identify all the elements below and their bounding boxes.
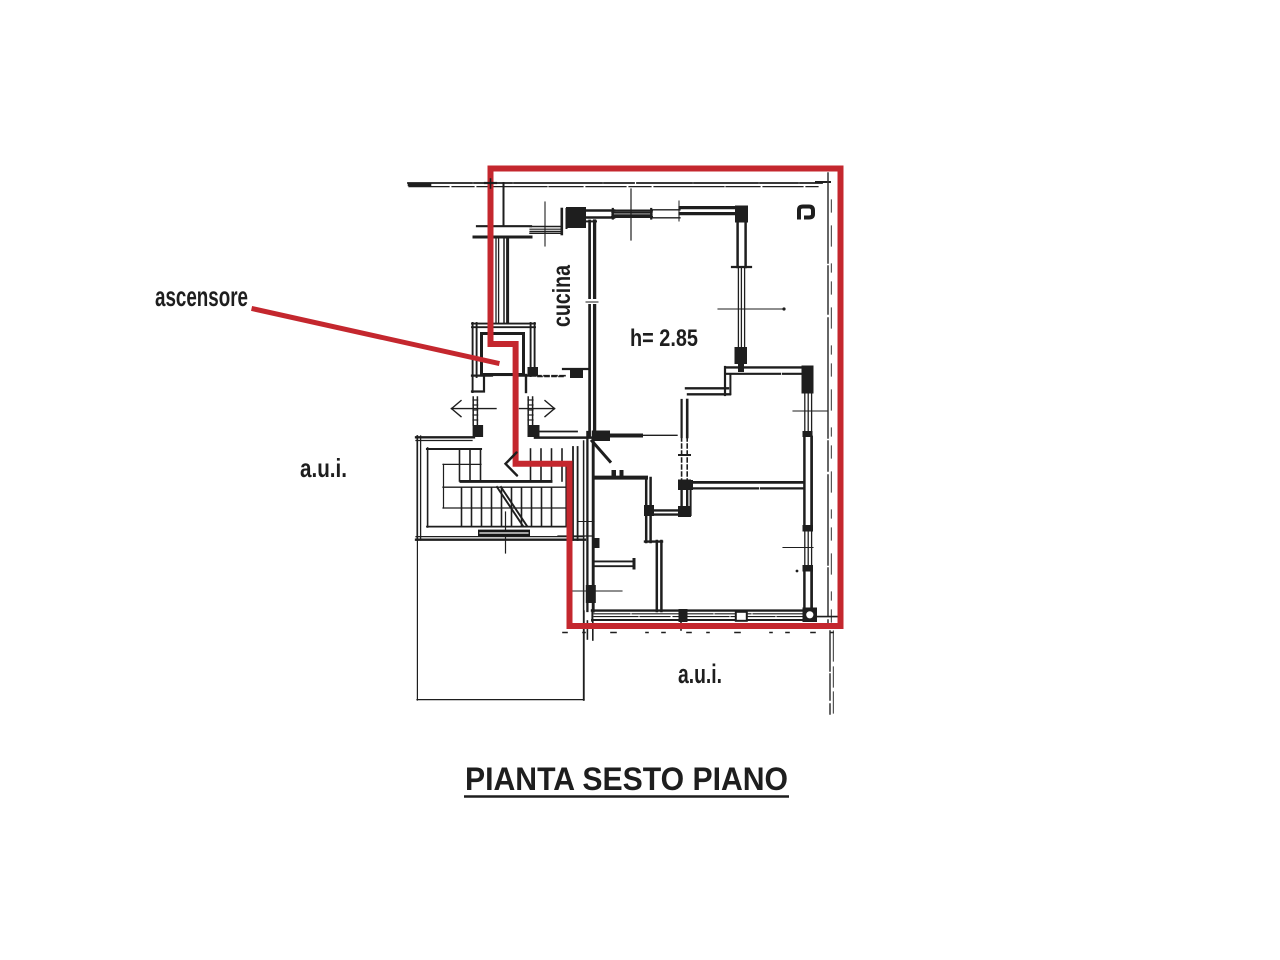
svg-text:cucina: cucina: [548, 264, 576, 327]
svg-text:a.u.i.: a.u.i.: [300, 453, 347, 483]
svg-text:a.u.i.: a.u.i.: [678, 659, 722, 689]
svg-text:PIANTA SESTO PIANO: PIANTA SESTO PIANO: [465, 761, 788, 797]
svg-text:ascensore: ascensore: [155, 281, 248, 312]
svg-text:h= 2.85: h= 2.85: [630, 325, 698, 352]
